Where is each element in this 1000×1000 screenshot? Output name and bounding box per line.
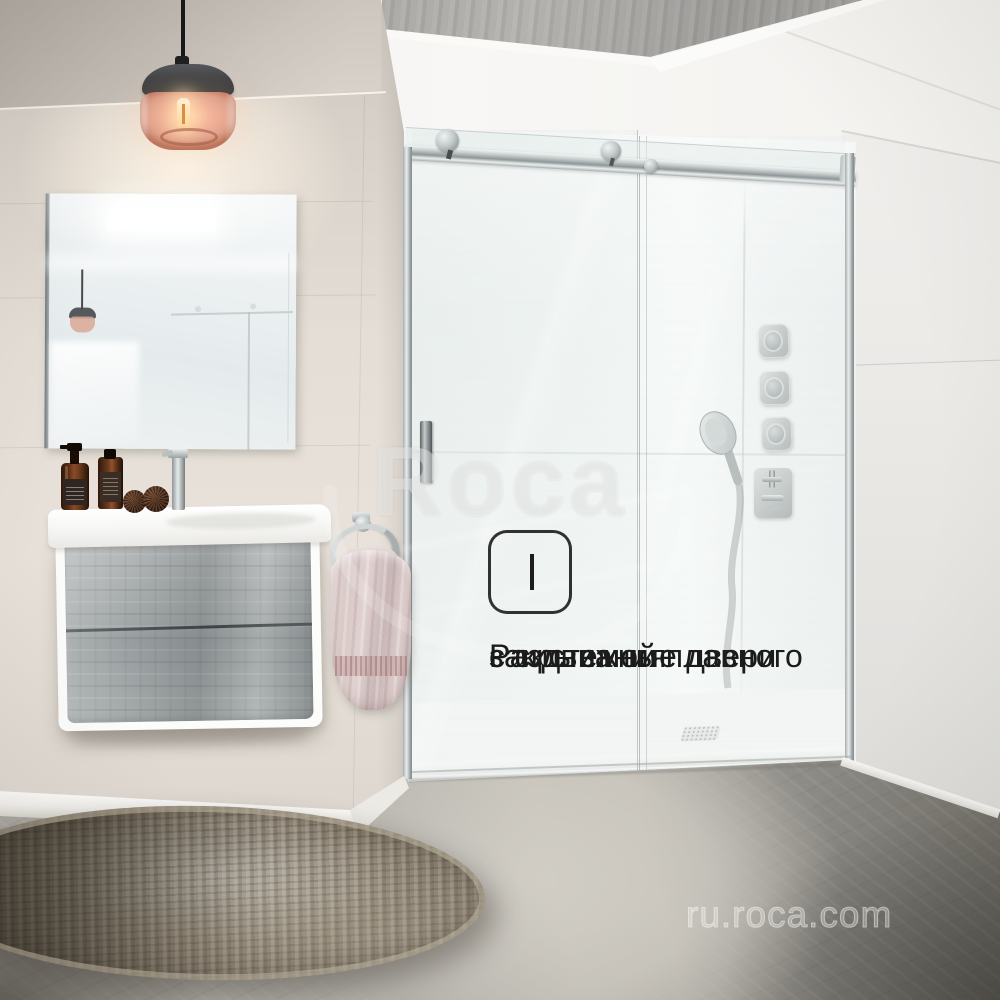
url-watermark: ru.roca.com: [686, 894, 892, 936]
amber-bottle-cap: [104, 449, 116, 459]
glass-wall-profile-right: [845, 153, 854, 771]
bathroom-product-photo: Roca Раздвижные двери с системой плавног…: [0, 0, 1000, 1000]
bottle-label: [63, 479, 87, 505]
reflected-roller: [195, 306, 201, 312]
drawer-seam: [66, 623, 312, 633]
soap-dispenser-spout: [60, 445, 68, 449]
soap-dispenser-pump: [67, 443, 82, 451]
soap-dispenser-neck: [70, 449, 79, 464]
faucet: [172, 456, 185, 510]
amber-bottle-label: [100, 472, 121, 502]
reflected-door-edge: [247, 312, 249, 452]
mirror: [44, 193, 296, 449]
vanity-cabinet: [55, 529, 322, 732]
hand-towel: [331, 550, 411, 710]
door-roller: [644, 159, 658, 173]
vanity-counter-basin: [48, 504, 332, 548]
mirror-led-light: [107, 207, 215, 232]
roca-watermark: Roca: [372, 432, 628, 530]
reflected-door-edge: [287, 253, 289, 443]
reflected-roller: [250, 303, 256, 309]
lamp-filament-bulb: [177, 98, 190, 130]
reflected-lamp-cord: [81, 270, 83, 310]
reflected-light-patch: [50, 341, 139, 441]
lamp-shade-rim: [160, 128, 218, 146]
soft-close-barcode-icon: [488, 530, 572, 614]
reflected-lamp-shade: [70, 316, 95, 332]
lamp-cord: [181, 0, 185, 60]
pinecone-decor: [143, 486, 169, 512]
caption-line-3: закрывания: [489, 633, 667, 679]
concrete-drawer-fronts: [64, 538, 313, 723]
reflected-door-track: [171, 311, 293, 316]
